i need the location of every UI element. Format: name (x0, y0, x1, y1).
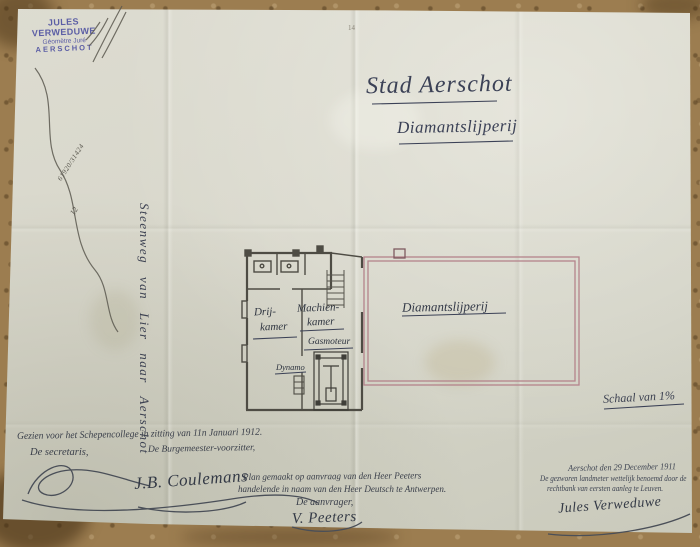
surveyor-date-line: Aerschot den 29 December 1911 (568, 461, 676, 473)
room1-label-line1: Drij- (254, 306, 276, 319)
request-closing: De aanvrager, (296, 497, 353, 508)
cork-blotch (180, 528, 400, 546)
paper-stain (90, 290, 140, 350)
requester-signature: V. Peeters (292, 509, 357, 528)
gasmotor-label: Gasmoteur (308, 337, 350, 347)
road-label: Steenweg van Lier naar Aerschot (136, 203, 152, 455)
room2-label-line2: kamer (307, 316, 335, 329)
request-line1: Plan gemaakt op aanvraag van den Heer Pe… (243, 471, 421, 483)
room1-label-line2: kamer (260, 321, 288, 334)
mayor-label: De Burgemeester-voorzitter, (148, 443, 255, 455)
page-mark: 14 (348, 24, 355, 32)
surveyor-line2: De gezworen landmeter wettelijk benoemd … (540, 474, 687, 483)
photographed-plan-document: JULES VERWEDUWE Géomètre Juré AERSCHOT 6… (0, 0, 700, 547)
surveyor-line3: rechtbank van eersten aanleg te Leuven. (547, 484, 663, 493)
main-hall-label: Diamantslijperij (402, 298, 488, 315)
paper-fold (350, 0, 360, 547)
dynamo-label: Dynamo (276, 362, 305, 372)
paper-fold (0, 224, 700, 233)
secretary-label: De secretaris, (30, 447, 89, 458)
paper-fold (0, 420, 700, 429)
room2-label-line1: Machien- (297, 301, 340, 314)
paper-fold (163, 0, 173, 547)
document-subtitle: Diamantslijperij (397, 116, 518, 138)
request-line2: handelende in naam van den Heer Deutsch … (238, 485, 446, 495)
surveyor-stamp: JULES VERWEDUWE Géomètre Juré AERSCHOT (15, 15, 113, 56)
paper-fold (514, 0, 524, 547)
paper-stain (425, 340, 495, 385)
document-title: Stad Aerschot (366, 71, 513, 101)
